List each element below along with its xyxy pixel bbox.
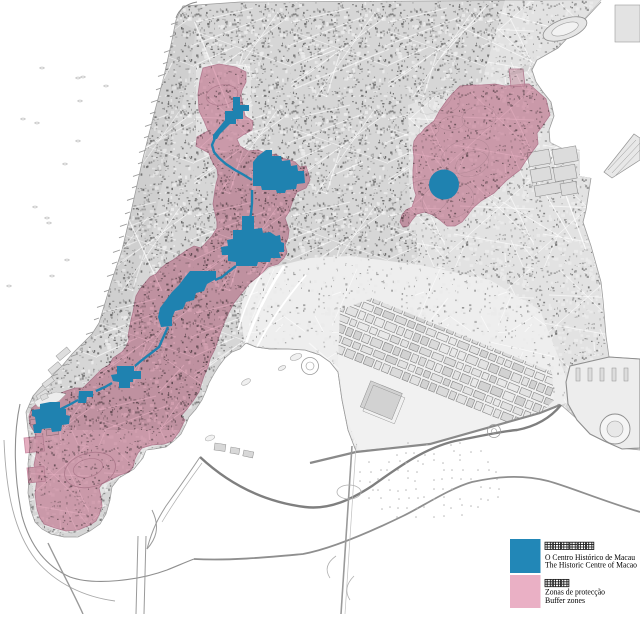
svg-text:The Historic Centre of Macao: The Historic Centre of Macao xyxy=(545,559,637,569)
svg-text:Buffer zones: Buffer zones xyxy=(545,595,586,605)
